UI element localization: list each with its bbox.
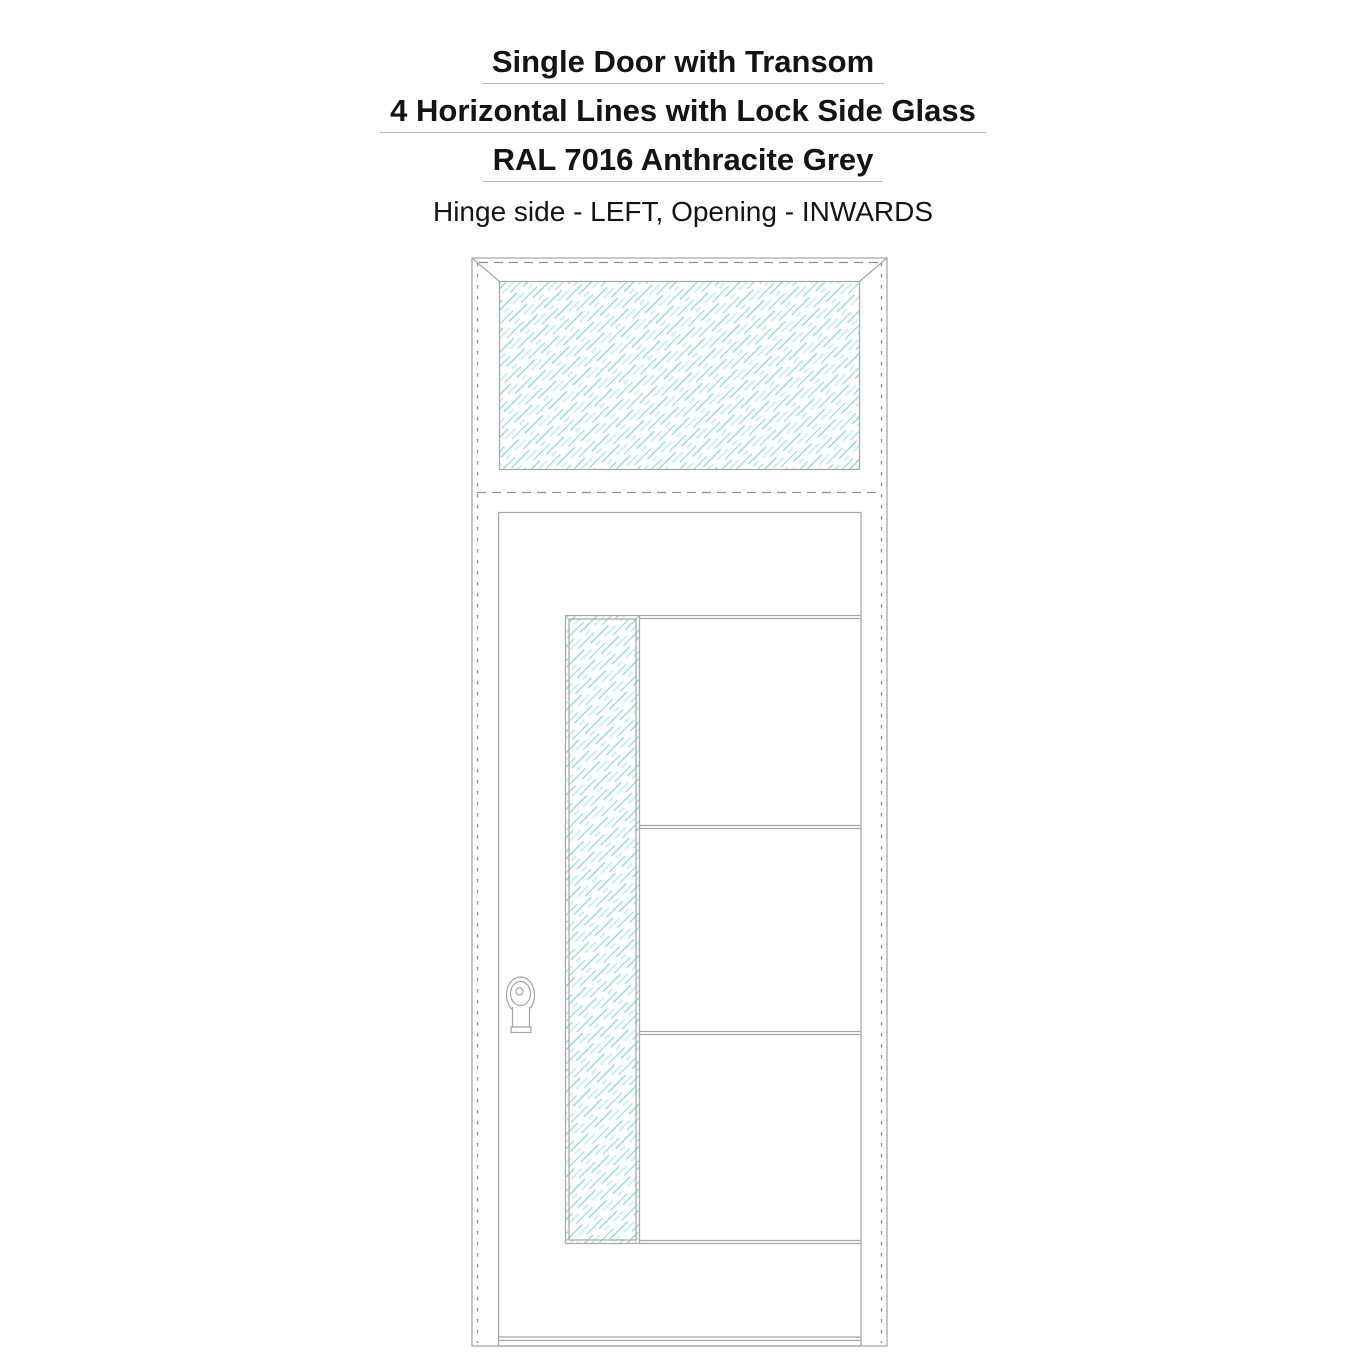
bottom-rail-groove xyxy=(499,1337,861,1341)
transom-glass xyxy=(500,282,860,470)
knob-base-plate xyxy=(511,1027,531,1033)
corner-diagonal-left xyxy=(472,258,500,282)
knob-stem xyxy=(513,1007,530,1027)
lock-side-glass-strip xyxy=(566,616,640,1244)
door-lock-knob xyxy=(507,977,535,1033)
door-drawing xyxy=(0,0,1366,1366)
door-drawing-svg xyxy=(0,0,1366,1366)
glass-strip-outer xyxy=(566,616,640,1244)
door-leaf xyxy=(499,513,862,1347)
corner-diagonal-right xyxy=(860,258,888,282)
horizontal-groove-lines xyxy=(640,616,861,1244)
